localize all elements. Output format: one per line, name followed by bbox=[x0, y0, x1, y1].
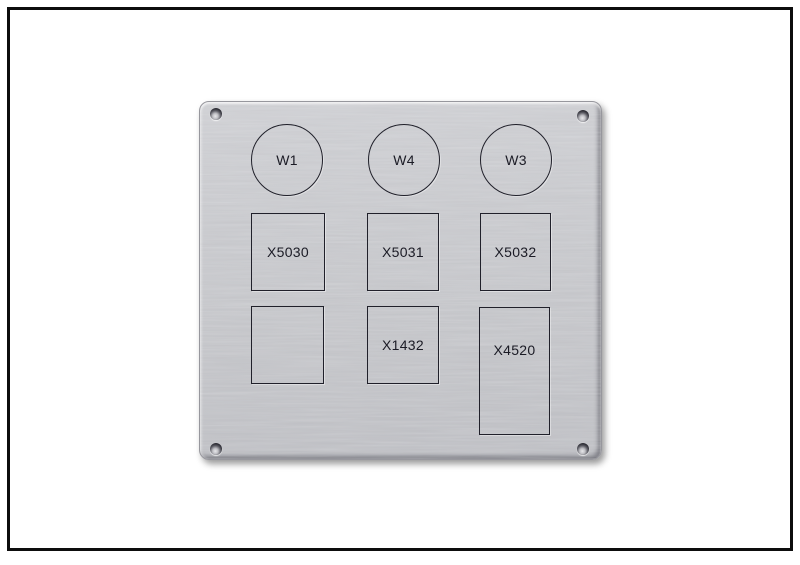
circle-label: W1 bbox=[276, 152, 298, 168]
engraved-circle-w4: W4 bbox=[368, 124, 440, 196]
box-label: X5030 bbox=[267, 244, 309, 260]
screw-hole-bottom-right bbox=[577, 443, 589, 455]
screw-hole-bottom-left bbox=[210, 443, 222, 455]
engraved-box-x1432: X1432 bbox=[367, 306, 439, 384]
screw-hole-top-left bbox=[210, 108, 222, 120]
screw-hole-top-right bbox=[577, 110, 589, 122]
box-label: X4520 bbox=[494, 342, 536, 358]
engraved-box-x5030: X5030 bbox=[251, 213, 325, 291]
box-label: X5032 bbox=[495, 244, 537, 260]
engraved-box-x5031: X5031 bbox=[367, 213, 439, 291]
engraved-circle-w3: W3 bbox=[480, 124, 552, 196]
box-label: X1432 bbox=[382, 337, 424, 353]
engraved-box-empty bbox=[251, 306, 324, 384]
box-label: X5031 bbox=[382, 244, 424, 260]
engraved-box-x5032: X5032 bbox=[480, 213, 551, 291]
circle-label: W4 bbox=[393, 152, 415, 168]
engraved-box-x4520: X4520 bbox=[479, 307, 550, 435]
circle-label: W3 bbox=[505, 152, 527, 168]
engraved-circle-w1: W1 bbox=[251, 124, 323, 196]
product-photo-canvas: { "plate": { "circles": [ { "label": "W1… bbox=[0, 0, 800, 565]
aluminum-panel-plate: W1 W4 W3 X5030 X5031 X5032 X1432 X4520 bbox=[199, 101, 602, 460]
